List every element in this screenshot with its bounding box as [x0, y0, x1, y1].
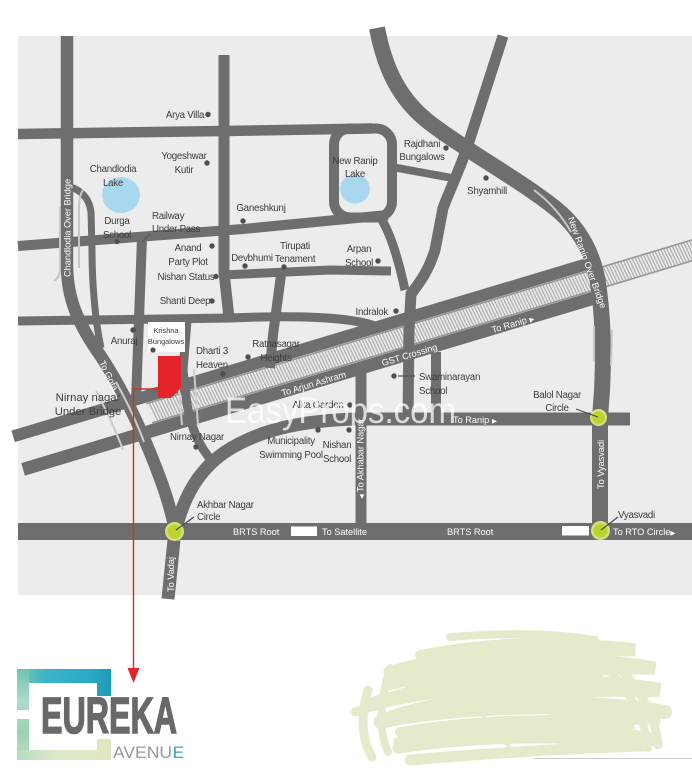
svg-text:Under Bridge: Under Bridge	[55, 406, 122, 418]
svg-text:Circle: Circle	[197, 512, 220, 523]
svg-text:Nishan: Nishan	[323, 440, 352, 451]
svg-text:Arpan: Arpan	[347, 244, 372, 255]
svg-text:Devbhumi: Devbhumi	[231, 253, 273, 264]
svg-text:School: School	[323, 454, 351, 465]
svg-text:Heights: Heights	[260, 353, 292, 364]
svg-text:Vyasvadi: Vyasvadi	[618, 510, 655, 521]
svg-text:Anand: Anand	[175, 243, 202, 254]
svg-text:Bungalows: Bungalows	[399, 152, 445, 163]
svg-text:Kutir: Kutir	[175, 165, 195, 176]
svg-text:Party Plot: Party Plot	[168, 257, 208, 268]
svg-text:Nirnay nagar: Nirnay nagar	[56, 392, 121, 404]
svg-text:Dharti 3: Dharti 3	[196, 346, 228, 357]
svg-text:Bungalows: Bungalows	[148, 337, 184, 346]
svg-text:Lake: Lake	[345, 169, 365, 180]
svg-text:Tirupati: Tirupati	[280, 241, 310, 252]
svg-text:Rajdhani: Rajdhani	[404, 139, 440, 150]
svg-text:To Satellite: To Satellite	[322, 527, 367, 537]
svg-text:School: School	[345, 258, 373, 269]
svg-text:Lake: Lake	[103, 178, 123, 189]
svg-text:Yogeshwar: Yogeshwar	[161, 151, 207, 162]
svg-text:To Ranip ▶: To Ranip ▶	[453, 415, 498, 425]
svg-text:Heaven: Heaven	[196, 360, 228, 371]
svg-text:Railway: Railway	[152, 211, 185, 222]
svg-text:Balol Nagar: Balol Nagar	[533, 390, 582, 401]
svg-text:Tenament: Tenament	[275, 254, 316, 265]
svg-text:Indralok: Indralok	[356, 307, 389, 318]
svg-text:EUREKA: EUREKA	[41, 687, 177, 744]
svg-text:Ratnasagar: Ratnasagar	[252, 339, 301, 350]
svg-text:To Vadaj: To Vadaj	[166, 557, 176, 592]
svg-text:To Vyasvadi: To Vyasvadi	[596, 440, 606, 489]
svg-text:Krishna: Krishna	[153, 326, 179, 335]
svg-text:BRTS Root: BRTS Root	[233, 527, 280, 537]
svg-text:Nishan Status: Nishan Status	[157, 272, 214, 283]
svg-text:Ganeshkunj: Ganeshkunj	[236, 203, 285, 214]
svg-text:BRTS Root: BRTS Root	[447, 527, 494, 537]
svg-text:Chandlodia Over Bridge: Chandlodia Over Bridge	[63, 179, 73, 277]
svg-text:New Ranip: New Ranip	[332, 156, 377, 167]
svg-text:To RTO Circle▶: To RTO Circle▶	[613, 527, 676, 537]
svg-text:Arya Villa: Arya Villa	[166, 110, 205, 121]
svg-text:AVENU: AVENU	[113, 743, 172, 762]
svg-text:Anuraj: Anuraj	[111, 336, 138, 347]
svg-text:EasyProps.com: EasyProps.com	[225, 390, 456, 431]
svg-text:Akhbar Nagar: Akhbar Nagar	[197, 500, 255, 511]
svg-text:Durga: Durga	[104, 216, 130, 227]
svg-text:E: E	[173, 743, 184, 762]
svg-text:Municipality: Municipality	[267, 436, 315, 447]
svg-text:Shanti Deep: Shanti Deep	[160, 296, 211, 307]
svg-text:Shyamhill: Shyamhill	[467, 186, 507, 197]
svg-text:Swimming Pool: Swimming Pool	[259, 450, 323, 461]
svg-text:Circle: Circle	[545, 403, 568, 414]
svg-text:Under Pass: Under Pass	[152, 224, 201, 235]
svg-text:Chandlodia: Chandlodia	[90, 164, 137, 175]
svg-text:Nirnay Nagar: Nirnay Nagar	[170, 432, 225, 443]
svg-text:Swaminarayan: Swaminarayan	[419, 372, 480, 383]
